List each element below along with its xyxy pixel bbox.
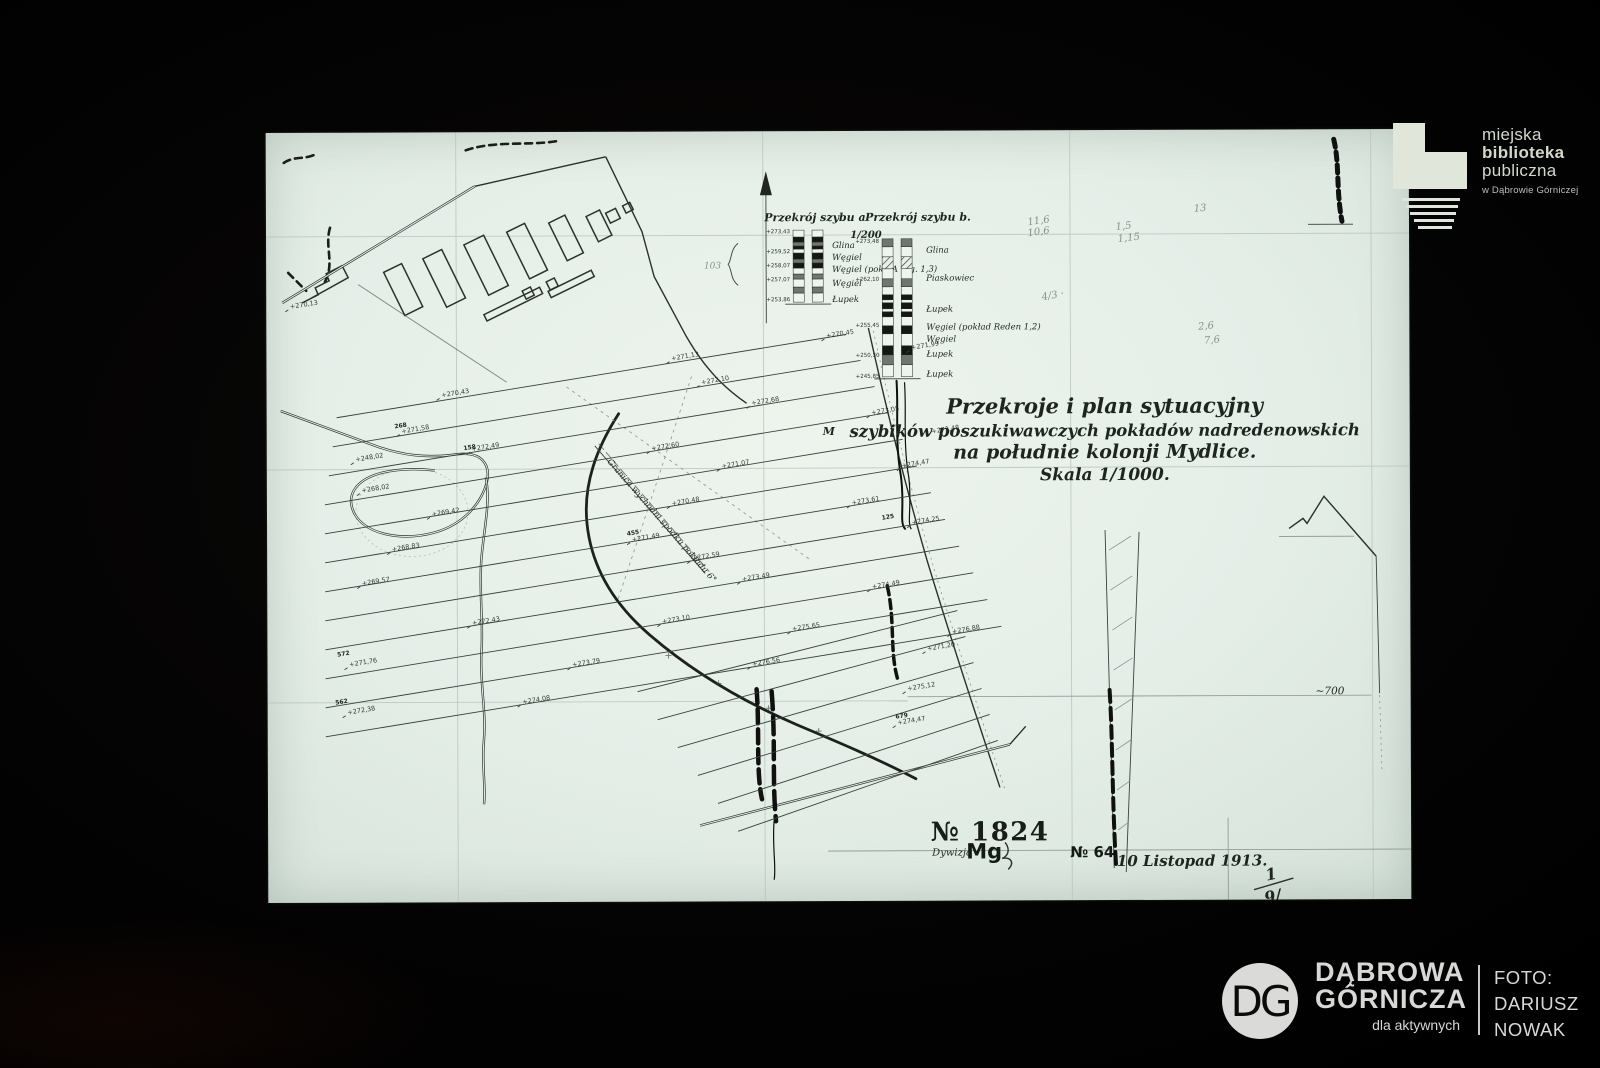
- svg-text:1: 1: [1264, 864, 1279, 885]
- depth-label: +253,86: [766, 297, 790, 303]
- background-shade: [0, 880, 620, 1068]
- city-tagline: dla aktywnych: [1315, 1017, 1460, 1033]
- spot-height-label: +273,61: [851, 495, 880, 507]
- depth-label: +255,45: [855, 323, 879, 329]
- faint-note: 1,5: [1115, 220, 1132, 233]
- depth-label: +245,85: [856, 374, 880, 380]
- city-logo: DG DĄBROWA GÓRNICZA dla aktywnych FOTO: …: [1215, 953, 1593, 1053]
- station-number-label: 572: [337, 650, 350, 659]
- depth-label: +258,07: [766, 263, 790, 269]
- spot-height-label: +272,43: [471, 615, 500, 627]
- library-logo: miejska biblioteka publiczna w Dąbrowie …: [1390, 120, 1595, 238]
- faint-note: 13: [1193, 203, 1207, 215]
- torn-edge-marks: [284, 141, 559, 291]
- title-block: Przekroje i plan sytuacyjny szybików pos…: [848, 392, 1360, 486]
- title-line-1: Przekroje i plan sytuacyjny: [945, 393, 1265, 419]
- sheet-number: № 64: [1070, 843, 1114, 861]
- spot-height-label: +275,12: [907, 680, 936, 692]
- spot-height-labels: +270,43+271,13+270,45+271,58+272,10+271,…: [285, 296, 981, 730]
- spot-height-label: +270,13: [289, 298, 318, 310]
- faint-note: 7,6: [1204, 334, 1221, 346]
- spot-height-label: +273,10: [661, 613, 690, 625]
- spot-height-label: +271,20: [927, 640, 956, 652]
- depth-label: +259,52: [766, 249, 790, 255]
- spot-height-label: +268,02: [361, 482, 390, 494]
- lithology-label: Glina: [832, 241, 855, 251]
- title-scale: Skala 1/1000.: [1040, 465, 1170, 485]
- spot-height-label: +276,56: [752, 656, 781, 668]
- spot-height-label: +270,45: [825, 328, 854, 340]
- spot-height-label: +269,57: [361, 575, 390, 587]
- credit-divider: [1478, 965, 1480, 1035]
- spot-height-label: +269,42: [431, 506, 460, 518]
- spot-height-label: +273,49: [741, 571, 770, 583]
- section-b-header: Przekrój szybu b.: [864, 211, 971, 224]
- map-drawing: GlinaWęgielWęgiel (pokł. A w.g. 1,3)Węgi…: [266, 129, 1412, 903]
- title-line-3: na południe kolonji Mydlice.: [953, 441, 1256, 464]
- faint-note: 2,6: [1197, 320, 1215, 333]
- stratigraphic-columns: GlinaWęgielWęgiel (pokł. A w.g. 1,3)Węgi…: [766, 228, 1041, 380]
- pencil-lines: [828, 695, 1412, 901]
- road-and-fences: [282, 156, 747, 405]
- letter-m-label: M: [822, 425, 836, 438]
- city-name-line-1: DĄBROWA: [1315, 959, 1467, 986]
- spot-height-label: +274,25: [911, 514, 940, 526]
- spot-height-label: +268,83: [391, 541, 420, 553]
- spot-height-label: +273,79: [572, 656, 601, 668]
- map-sheet: GlinaWęgielWęgiel (pokł. A w.g. 1,3)Węgi…: [266, 129, 1412, 903]
- spot-height-label: +274,08: [522, 694, 551, 706]
- lithology-label: Glina: [926, 246, 949, 256]
- spot-height-label: +276,88: [951, 623, 980, 635]
- credit-line-1: FOTO:: [1494, 965, 1579, 991]
- depth-label: +257,07: [766, 277, 790, 283]
- lithology-label: Łupek: [831, 295, 859, 305]
- spot-height-label: +275,65: [791, 621, 820, 633]
- svg-text:9/: 9/: [1262, 885, 1285, 903]
- faint-note: 4/3 ·: [1040, 288, 1065, 303]
- spot-height-label: +273,05: [871, 404, 900, 416]
- spot-height-label: +274,49: [871, 578, 900, 590]
- lithology-label: Węgiel: [832, 253, 862, 263]
- division-value: Mg: [966, 839, 1002, 863]
- survey-lines-fan: [324, 334, 1002, 833]
- credit-line-2: DARIUSZ: [1494, 991, 1579, 1017]
- spot-height-label: +270,48: [671, 495, 700, 507]
- dg-monogram-text: DG: [1231, 977, 1290, 1026]
- brace-glyph: [728, 243, 738, 285]
- lithology-label: Łupek: [925, 370, 953, 380]
- station-number-label: 125: [881, 513, 894, 522]
- faint-handwriting: 11,610,61,51,15134/3 ·2,67,6: [1027, 203, 1221, 348]
- library-line-2: biblioteka: [1482, 144, 1578, 162]
- depth-label: +262,10: [855, 277, 879, 283]
- depth-label: +250,30: [856, 353, 880, 359]
- library-logo-icon: [1390, 120, 1474, 236]
- city-name-line-2: GÓRNICZA: [1315, 986, 1467, 1013]
- peak-symbol: [1279, 496, 1382, 769]
- title-line-2: szybików poszukiwawczych pokładów nadred…: [848, 420, 1359, 441]
- depth-700-label: ~700: [1316, 685, 1345, 697]
- section-a-header: Przekrój szybu a: [763, 211, 865, 224]
- annotation-block: № 1824 Dywizja Mg № 64 10 Listopad 1913.…: [604, 423, 1345, 903]
- credit-line-3: NOWAK: [1494, 1017, 1579, 1043]
- spot-height-label: +271,76: [349, 656, 378, 668]
- faint-note: 1,15: [1117, 232, 1140, 245]
- library-line-1: miejska: [1482, 126, 1578, 144]
- date-label: 10 Listopad 1913.: [1117, 852, 1268, 871]
- spot-height-label: +248,02: [355, 451, 384, 463]
- brace-label: 103: [704, 261, 721, 271]
- lithology-label: Węgiel (pokład Reden 1,2): [926, 321, 1040, 332]
- spot-height-label: +272,38: [347, 704, 376, 716]
- faint-note: 10,6: [1027, 225, 1051, 239]
- dg-monogram-icon: DG: [1215, 953, 1311, 1049]
- spot-height-label: +272,68: [751, 395, 780, 407]
- library-line-3: publiczna: [1482, 162, 1578, 180]
- depth-label: +273,43: [766, 229, 790, 235]
- spot-height-label: +270,43: [441, 387, 470, 399]
- lithology-label: Piaskowiec: [925, 274, 974, 284]
- station-number-label: 562: [335, 698, 348, 707]
- section-scale: 1/200: [850, 230, 882, 241]
- library-line-4: w Dąbrowie Górniczej: [1482, 182, 1578, 200]
- photo-stage: GlinaWęgielWęgiel (pokł. A w.g. 1,3)Węgi…: [0, 0, 1600, 1068]
- lithology-label: Łupek: [925, 350, 953, 360]
- spot-height-label: +272,60: [651, 440, 680, 452]
- lithology-label: Łupek: [925, 305, 953, 315]
